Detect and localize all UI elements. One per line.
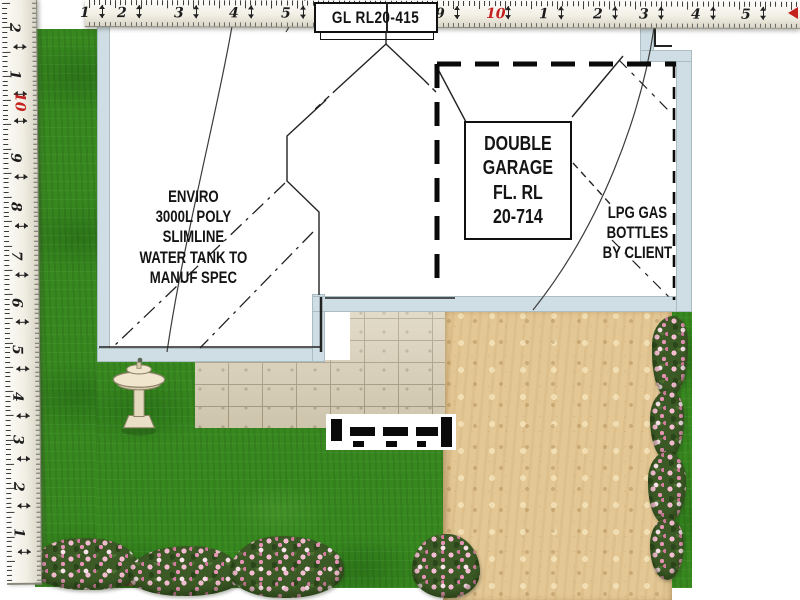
landscape-plan-canvas: GL RL20-415 DOUBLE GARAGE FL. RL 20-714 … [0,0,800,600]
ruler-top-number: 5 [281,7,291,21]
ruler-top-number: 3 [639,7,649,21]
ruler-top-number: 5 [741,8,751,22]
ruler-left: 2110987654321 [2,0,42,585]
ruler-left-number: 9 [8,153,22,163]
flower-bed-bottom-1 [32,538,138,590]
lpg-note-text: LPG GAS BOTTLES BY CLIENT [602,203,671,263]
ruler-top-number: 1 [539,7,549,21]
ruler-top-number: 4 [229,6,239,20]
garage-label-box: DOUBLE GARAGE FL. RL 20-714 [464,121,572,240]
gl-rl-label-box: GL RL20-415 [314,2,438,33]
water-tank-note-text: ENVIRO 3000L POLY SLIMLINE WATER TANK TO… [139,187,247,288]
ruler-left-number: 8 [9,202,23,212]
ruler-top: 1234591012345 [85,0,800,29]
ruler-top-number: 1 [80,6,90,20]
ruler-left-number: 10 [13,92,27,112]
ruler-top-number: 3 [174,6,184,20]
gl-rl-label-underline [320,33,434,40]
ruler-left-number: 4 [10,392,24,402]
flower-bed-bottom-4 [412,534,480,598]
flower-bed-bottom-3 [230,536,344,598]
ruler-left-number: 3 [11,435,25,445]
ruler-top-number: 2 [593,7,603,21]
ruler-top-number: 2 [117,6,127,20]
water-tank-note: ENVIRO 3000L POLY SLIMLINE WATER TANK TO… [100,167,286,288]
ruler-left-number: 1 [7,70,21,80]
garage-label-text: DOUBLE GARAGE FL. RL 20-714 [483,132,553,230]
ruler-left-number: 2 [11,482,25,492]
ruler-top-number: 10 [486,7,506,21]
ruler-left-number: 7 [9,251,23,261]
bird-bath-icon [108,356,170,436]
ruler-left-number: 6 [9,298,23,308]
ruler-end-mark [788,7,798,19]
flower-bed-bottom-2 [128,546,242,596]
garage-door-symbol [326,414,456,450]
gl-rl-label-text: GL RL20-415 [332,8,419,28]
ruler-top-number: 4 [691,8,701,22]
ruler-left-number: 2 [7,23,21,33]
lpg-note: LPG GAS BOTTLES BY CLIENT [586,183,688,264]
ruler-left-number: 1 [11,528,25,538]
ruler-left-number: 5 [10,345,24,355]
